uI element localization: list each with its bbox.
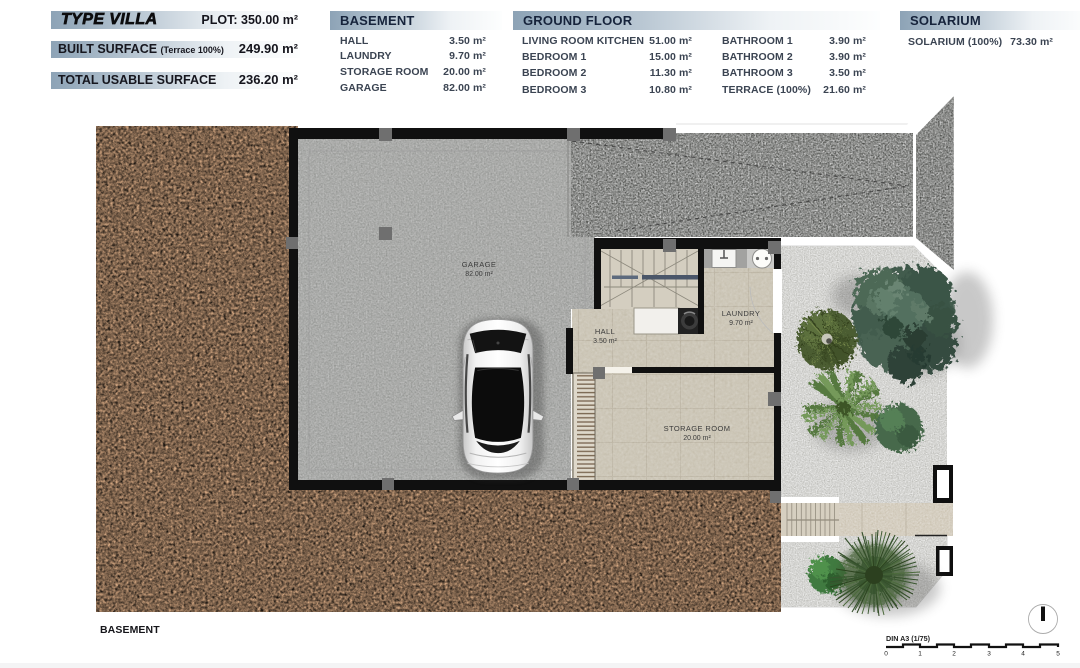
svg-text:9.70 m²: 9.70 m²: [729, 320, 753, 327]
svg-text:20.00 m²: 20.00 m²: [683, 435, 711, 442]
svg-text:1: 1: [918, 651, 922, 658]
svg-text:82.00 m²: 82.00 m²: [465, 271, 493, 278]
svg-text:LAUNDRY: LAUNDRY: [722, 309, 761, 318]
svg-text:5: 5: [1056, 651, 1060, 658]
svg-text:DIN A3 (1/75): DIN A3 (1/75): [886, 634, 931, 643]
svg-text:3.50 m²: 3.50 m²: [593, 338, 617, 345]
svg-text:HALL: HALL: [595, 327, 615, 336]
svg-text:GARAGE: GARAGE: [462, 260, 497, 269]
svg-text:4: 4: [1021, 651, 1025, 658]
svg-text:3: 3: [987, 651, 991, 658]
svg-text:2: 2: [952, 651, 956, 658]
svg-text:STORAGE ROOM: STORAGE ROOM: [664, 424, 731, 433]
svg-text:0: 0: [884, 651, 888, 658]
